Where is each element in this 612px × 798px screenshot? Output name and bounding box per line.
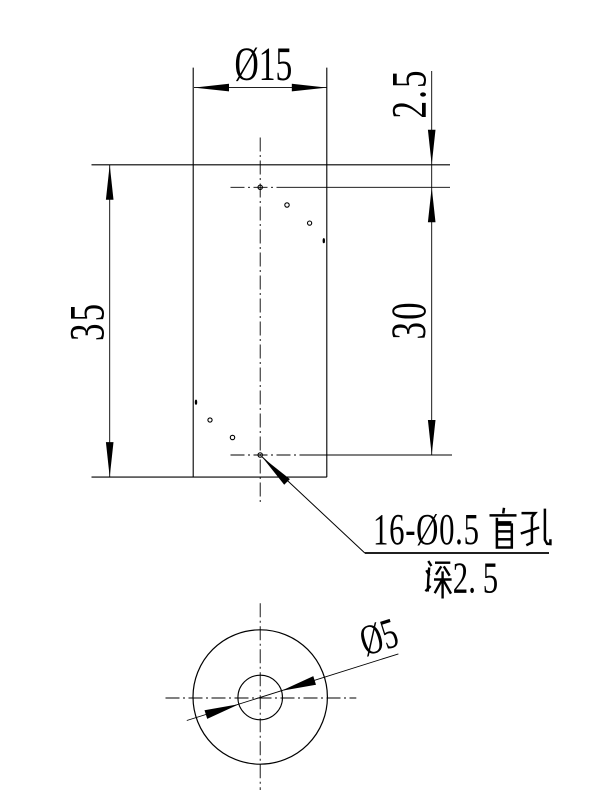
svg-text:2.: 2. [453, 554, 476, 603]
svg-text:5: 5 [483, 554, 498, 603]
svg-text:30: 30 [382, 300, 436, 339]
svg-text:2.5: 2.5 [383, 68, 437, 118]
svg-text:Ø15: Ø15 [235, 37, 293, 90]
svg-text:35: 35 [61, 302, 115, 341]
svg-text:16-Ø0.5: 16-Ø0.5 [373, 506, 480, 555]
